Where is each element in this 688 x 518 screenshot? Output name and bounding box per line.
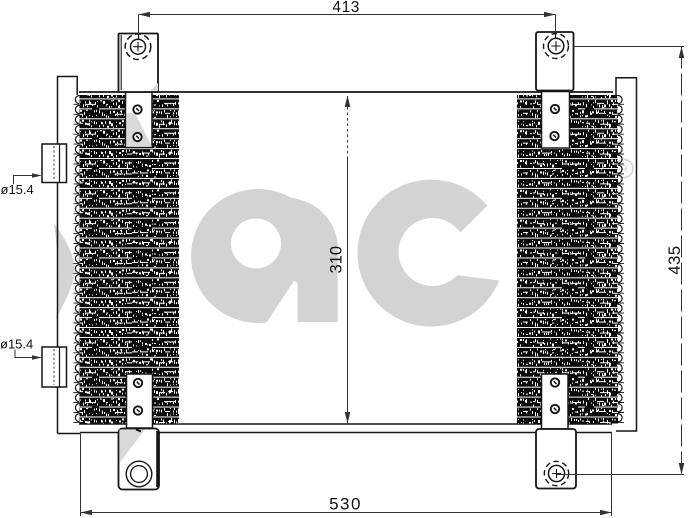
svg-text:ø15.4: ø15.4	[0, 337, 33, 352]
svg-text:310: 310	[328, 246, 346, 274]
svg-text:530: 530	[329, 495, 362, 514]
svg-text:413: 413	[332, 0, 360, 16]
svg-text:ø15.4: ø15.4	[1, 182, 34, 197]
svg-text:435: 435	[666, 245, 684, 274]
